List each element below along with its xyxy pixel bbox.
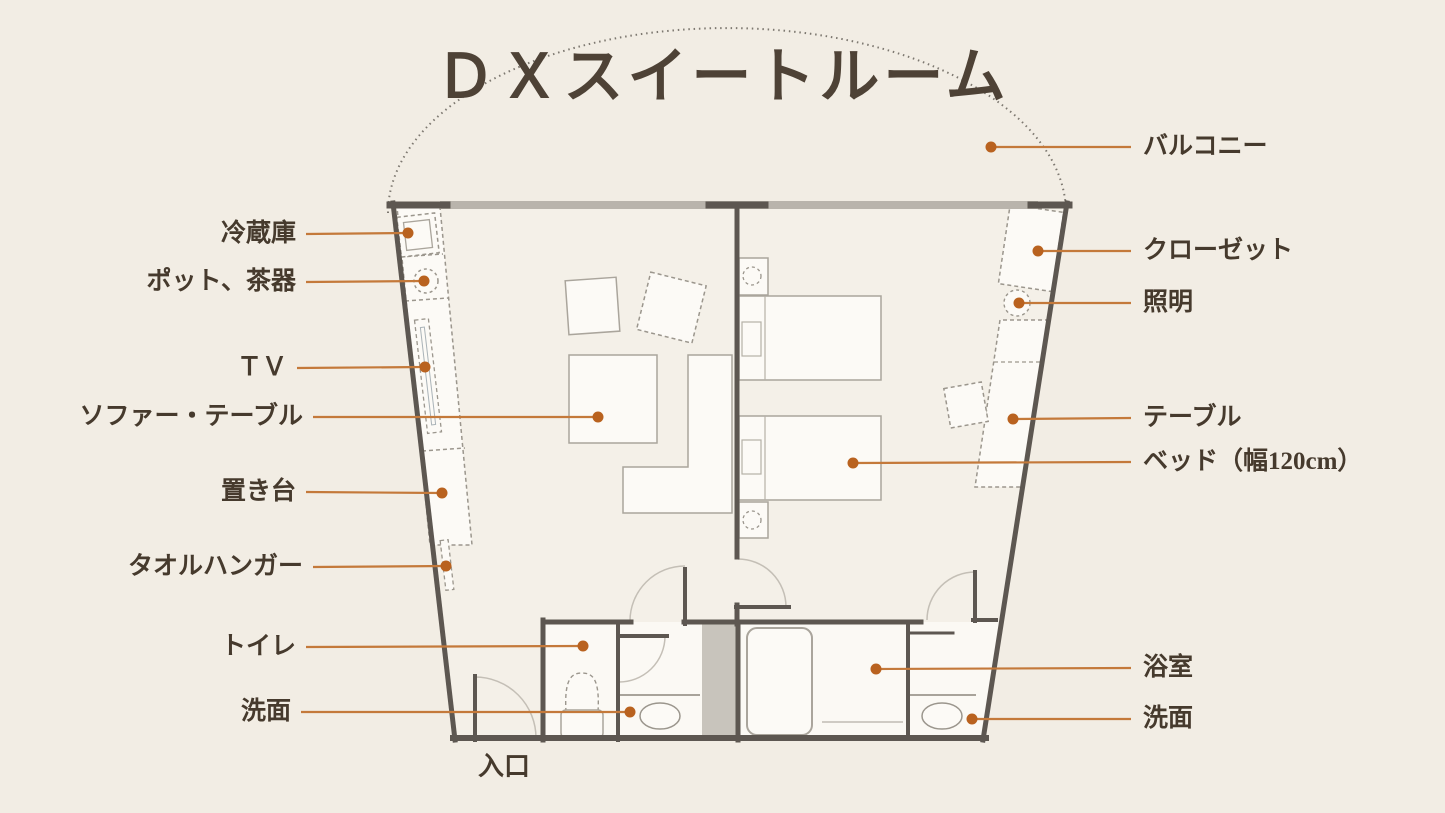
- leader-dot-toilet: [578, 641, 589, 652]
- living-table-icon: [569, 355, 657, 443]
- nightstand-icon: [739, 502, 768, 538]
- leader-dot-bed: [848, 458, 859, 469]
- callout-label-pot-tea-set: ポット、茶器: [146, 265, 296, 299]
- callout-label-sofa-table: ソファー・テーブル: [79, 400, 303, 434]
- leader-line-refrigerator: [306, 233, 408, 234]
- toilet-tank-icon: [561, 710, 603, 738]
- leader-dot-tv: [420, 362, 431, 373]
- leader-line-stand: [306, 492, 442, 493]
- pipe-shaft: [702, 622, 736, 738]
- leader-dot-balcony: [986, 142, 997, 153]
- leader-dot-washbasin-right: [967, 714, 978, 725]
- leader-dot-sofa-table: [593, 412, 604, 423]
- leader-dot-lighting: [1014, 298, 1025, 309]
- callout-label-bed: ベッド（幅120cm）: [1143, 445, 1362, 479]
- chair-icon: [944, 382, 988, 428]
- leader-line-tv: [297, 367, 425, 368]
- nightstand-icon: [739, 258, 768, 295]
- leader-line-bathroom: [876, 668, 1131, 669]
- entrance-label: 入口: [478, 746, 530, 783]
- leader-dot-closet: [1033, 246, 1044, 257]
- chair-icon: [565, 277, 620, 334]
- leader-dot-washbasin-left: [625, 707, 636, 718]
- callout-label-refrigerator: 冷蔵庫: [221, 217, 296, 251]
- callout-label-balcony: バルコニー: [1143, 130, 1268, 164]
- callout-label-closet: クローゼット: [1143, 234, 1293, 268]
- leader-dot-pot-tea-set: [419, 276, 430, 287]
- toilet-bowl-icon: [566, 673, 599, 712]
- pillow-icon: [742, 322, 761, 356]
- page-title: ＤＸスイートルーム: [0, 28, 1445, 115]
- leader-dot-table: [1008, 414, 1019, 425]
- leader-line-toilet: [306, 646, 583, 647]
- leader-dot-bathroom: [871, 664, 882, 675]
- leader-dot-stand: [437, 488, 448, 499]
- callout-label-towel-hanger: タオルハンガー: [128, 550, 303, 584]
- leader-dot-towel-hanger: [441, 561, 452, 572]
- washbasin-icon-left: [640, 703, 680, 729]
- callout-label-washbasin-right: 洗面: [1143, 702, 1193, 736]
- bathtub-icon: [747, 628, 812, 735]
- callout-label-lighting: 照明: [1143, 286, 1193, 320]
- leader-line-bed: [853, 462, 1131, 463]
- pillow-icon: [742, 440, 761, 474]
- callout-label-table: テーブル: [1143, 401, 1242, 435]
- leader-line-pot-tea-set: [306, 281, 424, 282]
- callout-label-tv: ＴＶ: [237, 351, 287, 385]
- callout-label-washbasin-left: 洗面: [241, 695, 291, 729]
- floor-plan-page: ＤＸスイートルーム 入口 冷蔵庫ポット、茶器ＴＶソファー・テーブル置き台タオルハ…: [0, 0, 1445, 813]
- washbasin-icon-right: [922, 703, 962, 729]
- leader-line-table: [1013, 418, 1131, 419]
- callout-label-stand: 置き台: [221, 475, 296, 509]
- callout-label-toilet: トイレ: [221, 630, 296, 664]
- callout-label-bathroom: 浴室: [1143, 651, 1193, 685]
- leader-line-towel-hanger: [313, 566, 446, 567]
- leader-dot-refrigerator: [403, 228, 414, 239]
